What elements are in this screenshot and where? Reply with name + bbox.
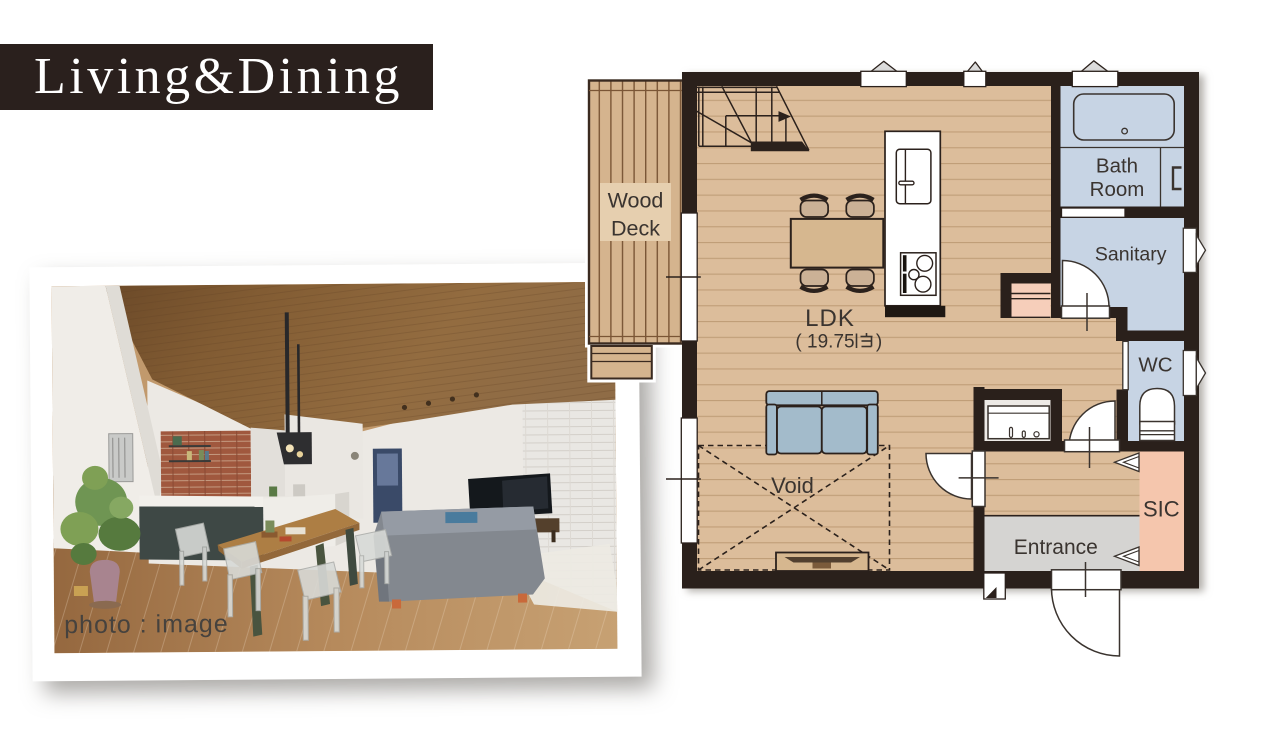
svg-text:Void: Void: [771, 473, 814, 498]
svg-text:Room: Room: [1090, 178, 1145, 201]
svg-text:): ): [876, 332, 882, 353]
svg-text:Sanitary: Sanitary: [1095, 243, 1167, 265]
svg-text:( 19.75: ( 19.75: [795, 332, 854, 353]
svg-text:WC: WC: [1138, 354, 1172, 377]
svg-text:Bath: Bath: [1096, 154, 1138, 177]
svg-text:Entrance: Entrance: [1014, 536, 1098, 559]
svg-text:LDK: LDK: [805, 305, 855, 332]
svg-text:SIC: SIC: [1143, 497, 1180, 522]
svg-text:Deck: Deck: [611, 217, 660, 241]
svg-text:Wood: Wood: [608, 189, 664, 213]
